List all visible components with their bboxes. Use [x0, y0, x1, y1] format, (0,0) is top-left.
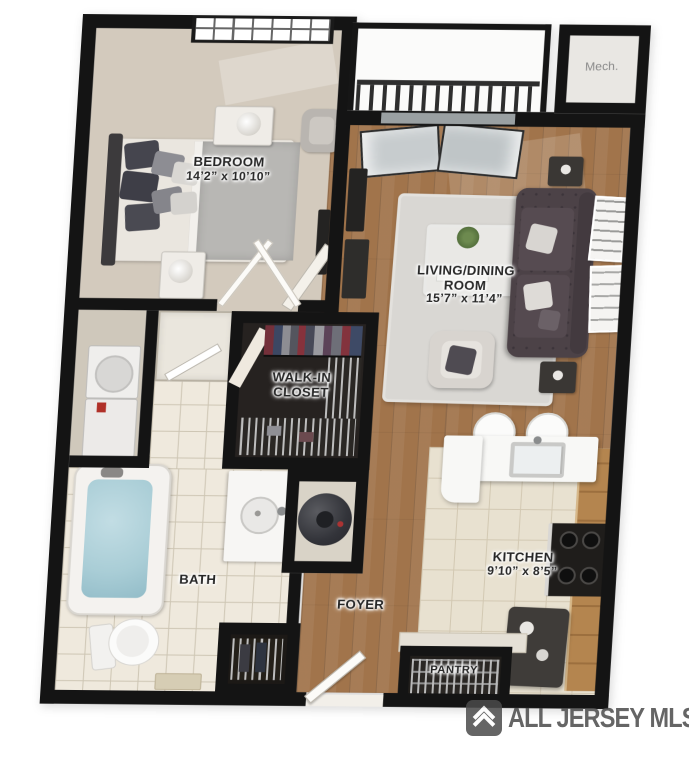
bath-floor: [149, 377, 228, 468]
bath-label: BATH: [157, 573, 239, 588]
window-panes: [195, 18, 330, 41]
sliding-door-pane: [437, 123, 525, 180]
tub-faucet: [101, 468, 124, 478]
sliding-door-pane: [360, 124, 441, 178]
floor-plan: Mech. BEDROOM 14’2” x 10’10” LIVING/DINI…: [40, 14, 652, 709]
walkin-label: WALK-IN CLOSET: [240, 370, 364, 400]
room-name: BEDROOM: [163, 155, 296, 171]
living-label: LIVING/DINING ROOM 15’7” x 11’4”: [400, 263, 531, 306]
bed-pillow: [170, 191, 197, 215]
mech-label: Mech.: [568, 59, 635, 74]
sliding-door-glass: [381, 112, 516, 124]
bedroom-chair-cushion: [308, 117, 334, 145]
hanging-item: [239, 644, 251, 672]
chevron-house-icon: [466, 700, 502, 736]
wall: [69, 455, 150, 468]
laundry-detergent: [97, 402, 107, 412]
room-name: WALK-IN: [240, 370, 363, 386]
toilet: [88, 613, 161, 672]
watermark-text: ALL JERSEY MLS: [508, 702, 689, 734]
hanging-item: [255, 643, 267, 673]
mech-room: Mech.: [554, 25, 651, 115]
room-name: KITCHEN: [455, 550, 592, 566]
kitchen-sink-basin: [513, 446, 563, 474]
hanging-clothes: [264, 325, 363, 357]
water-heater-closet: [281, 469, 369, 573]
room-name: FOYER: [320, 598, 402, 613]
room-dims: 15’7” x 11’4”: [400, 292, 529, 306]
bath-mat: [154, 673, 202, 690]
wall: [64, 298, 217, 311]
kitchen-label: KITCHEN 9’10” x 8’5”: [454, 550, 592, 579]
watermark: ALL JERSEY MLS: [466, 700, 689, 736]
bedroom-window: [191, 15, 335, 44]
room-dims: 14’2” x 10’10”: [162, 169, 295, 184]
shelf-item: [299, 432, 314, 442]
wall: [40, 690, 307, 706]
balcony-railing: [355, 80, 540, 112]
room-dims: 9’10” x 8’5”: [454, 564, 591, 579]
floor-plan-image: Mech. BEDROOM 14’2” x 10’10” LIVING/DINI…: [0, 0, 689, 768]
room-name: LIVING/DINING: [402, 263, 531, 279]
closet-shelf: [239, 418, 356, 457]
sofa-pillow: [537, 309, 561, 331]
wall: [298, 300, 339, 312]
pantry-label: PANTRY: [407, 664, 501, 677]
foyer-label: FOYER: [320, 598, 402, 613]
room-name: PANTRY: [407, 664, 501, 677]
kitchen-counter-corner: [440, 435, 483, 502]
laundry-dryer: [81, 398, 138, 458]
room-name: CLOSET: [240, 385, 363, 401]
bedroom-label: BEDROOM 14’2” x 10’10”: [162, 155, 296, 184]
room-name: BATH: [157, 573, 239, 588]
shelf-item: [267, 426, 282, 436]
balcony: [347, 23, 551, 113]
media-console: [341, 239, 369, 298]
bathtub-water: [81, 479, 153, 598]
